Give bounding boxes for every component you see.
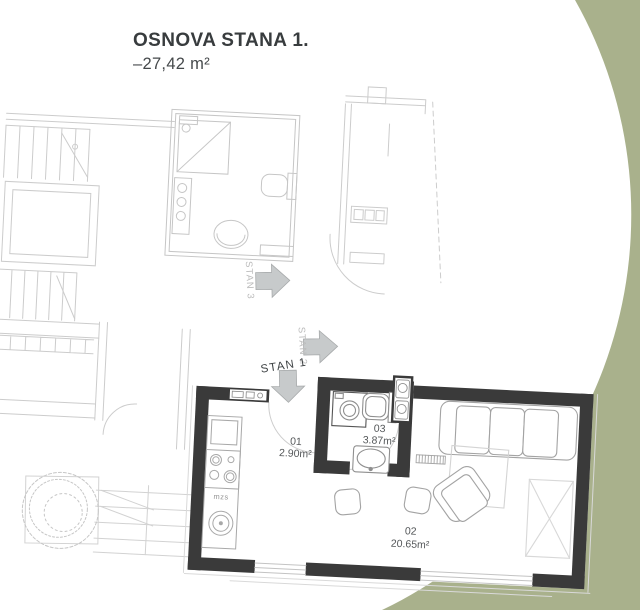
bathroom-sink: [353, 446, 390, 474]
room-02-area: 20.65m²: [391, 538, 431, 552]
vanity: [172, 178, 192, 235]
fuse-box: [229, 389, 267, 402]
tree-icon: [20, 471, 100, 551]
room-02-id: 02: [405, 525, 417, 538]
terrace: [22, 473, 202, 557]
page-title: OSNOVA STANA 1.: [133, 30, 309, 52]
context-room-right: [337, 86, 450, 283]
room-01-id: 01: [290, 436, 302, 449]
staircase-upper: [4, 125, 90, 181]
staircase-lower: [0, 269, 110, 420]
hall-wall: [176, 329, 190, 449]
context-bathroom: [165, 109, 300, 261]
boiler: [392, 377, 412, 423]
room-03-area: 3.87m²: [362, 434, 396, 448]
stool: [403, 486, 432, 515]
room-01-area: 2.90m²: [279, 447, 313, 461]
shower: [177, 116, 231, 174]
stan3-arrow-icon: [255, 264, 290, 298]
apartment-total-area: –27,42 m²: [133, 55, 309, 74]
kitchen-label: mzs: [213, 492, 229, 502]
elevator: [1, 181, 99, 265]
stool: [334, 488, 361, 515]
context-sink: [213, 220, 248, 250]
drawing-title-block: OSNOVA STANA 1. –27,42 m²: [133, 30, 309, 74]
kitchenette: [351, 206, 388, 224]
floor-plan-drawing: mzs: [0, 0, 640, 610]
stan3-label: STAN 3: [243, 261, 256, 300]
hall-door-arc: [103, 402, 137, 436]
kitchen-counter: [202, 416, 242, 550]
room-03-id: 03: [374, 423, 386, 436]
floor-plan-page: OSNOVA STANA 1. –27,42 m²: [0, 0, 640, 610]
balcony-dashed-line: [424, 102, 450, 283]
